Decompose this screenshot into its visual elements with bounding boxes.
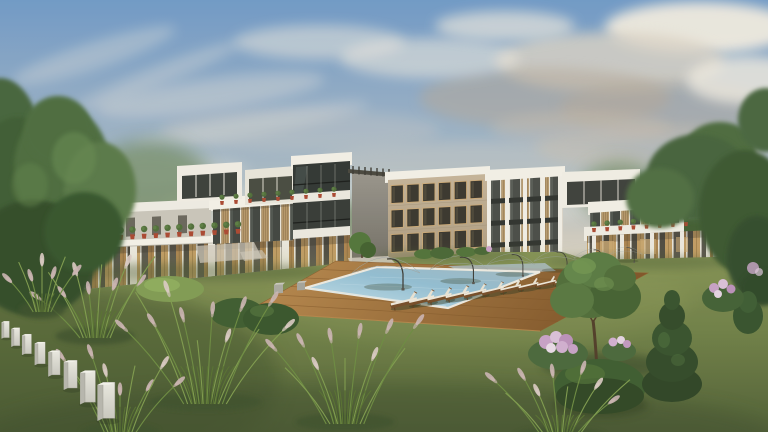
warm-tint-overlay (0, 0, 768, 432)
architectural-rendering (0, 0, 768, 432)
render-canvas (0, 0, 768, 432)
